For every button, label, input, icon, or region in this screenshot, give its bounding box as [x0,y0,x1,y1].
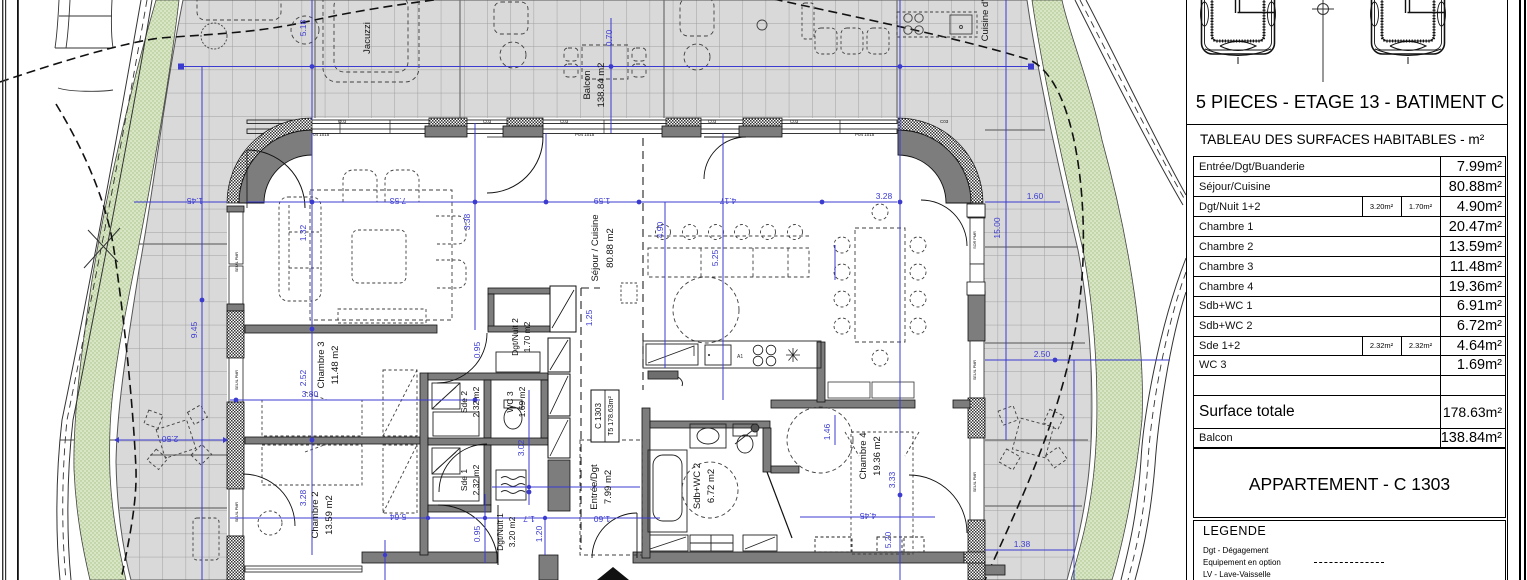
svg-text:C03: C03 [708,119,717,124]
svg-text:5.18: 5.18 [298,19,308,36]
svg-text:1.25: 1.25 [584,309,594,326]
svg-text:SEUIL PMR: SEUIL PMR [235,370,239,391]
svg-text:P04 1015: P04 1015 [310,132,330,137]
svg-text:2.32 m2: 2.32 m2 [471,386,481,417]
svg-text:1.32: 1.32 [298,224,308,241]
svg-text:80.88 m2: 80.88 m2 [605,228,616,268]
svg-text:1.45: 1.45 [186,196,203,206]
svg-text:SEUIL PMR: SEUIL PMR [235,502,239,523]
svg-text:Sdb+WC 2: Sdb+WC 2 [692,463,703,509]
svg-text:Séjour / Cuisine: Séjour / Cuisine [590,214,601,281]
svg-text:C03: C03 [338,119,347,124]
svg-text:3.28: 3.28 [876,191,893,201]
svg-text:1.60: 1.60 [1027,191,1044,201]
svg-text:Sde 2: Sde 2 [459,391,469,413]
svg-text:3.28: 3.28 [298,489,308,506]
svg-text:Sde 1: Sde 1 [459,469,469,491]
svg-text:2.50: 2.50 [1034,349,1051,359]
svg-text:Cuisine d'é: Cuisine d'é [980,0,991,41]
svg-text:Jacuzzi: Jacuzzi [362,22,373,54]
svg-text:13.59 m2: 13.59 m2 [324,495,335,535]
svg-text:Dgt/Nuit 2: Dgt/Nuit 2 [510,318,520,356]
svg-text:SEUIL PMR: SEUIL PMR [973,360,977,381]
svg-text:5.64: 5.64 [389,512,406,522]
svg-text:C03: C03 [940,119,949,124]
svg-text:P04 1015: P04 1015 [855,132,875,137]
svg-text:C03: C03 [790,119,799,124]
svg-text:0.95: 0.95 [472,341,482,358]
svg-text:1.59: 1.59 [593,196,610,206]
svg-text:2.50: 2.50 [161,434,178,444]
svg-text:4.17: 4.17 [719,196,736,206]
svg-text:7.53: 7.53 [389,196,406,206]
svg-text:19.36 m2: 19.36 m2 [872,436,883,476]
svg-text:C 1303: C 1303 [594,403,603,429]
svg-text:15.00: 15.00 [992,217,1002,239]
svg-text:2.32 m2: 2.32 m2 [471,464,481,495]
svg-text:4.90: 4.90 [655,221,665,238]
svg-text:1.60: 1.60 [593,514,610,524]
svg-text:5.20: 5.20 [883,531,893,548]
svg-text:C03: C03 [560,119,569,124]
svg-text:11.48 m2: 11.48 m2 [330,346,341,385]
svg-text:Balcon: Balcon [582,70,593,99]
svg-text:5.25: 5.25 [710,249,720,266]
svg-text:3.20 m2: 3.20 m2 [507,516,517,547]
svg-text:3.80: 3.80 [302,389,319,399]
svg-text:138.84 m2: 138.84 m2 [596,63,607,108]
svg-text:P04 1015: P04 1015 [575,132,595,137]
svg-text:Chambre 3: Chambre 3 [316,342,327,389]
svg-text:T5 178.63m²: T5 178.63m² [608,395,615,435]
svg-text:A1: A1 [737,354,743,360]
svg-text:0.95: 0.95 [472,525,482,542]
svg-text:Entrée/Dgt: Entrée/Dgt [589,464,600,510]
svg-text:WC 3: WC 3 [505,391,515,413]
svg-text:C03: C03 [483,119,492,124]
svg-text:1.38: 1.38 [1014,539,1031,549]
svg-text:3.33: 3.33 [887,471,897,488]
svg-text:Chambre 2: Chambre 2 [310,492,321,539]
svg-text:2.52: 2.52 [298,369,308,386]
svg-text:1.7: 1.7 [523,514,535,524]
svg-text:1.70 m2: 1.70 m2 [522,321,532,352]
svg-text:1.46: 1.46 [822,423,832,440]
svg-text:7.99 m2: 7.99 m2 [603,470,614,504]
svg-text:0.70: 0.70 [604,29,614,46]
svg-text:SEUIL PMR: SEUIL PMR [235,252,239,273]
svg-text:6.72 m2: 6.72 m2 [706,469,717,503]
svg-text:Chambre 4: Chambre 4 [858,433,869,480]
svg-text:1.69 m2: 1.69 m2 [517,386,527,417]
svg-text:4.45: 4.45 [859,511,876,521]
svg-text:1.20: 1.20 [534,525,544,542]
svg-text:9.45: 9.45 [189,321,199,338]
svg-text:3.38: 3.38 [462,213,472,230]
svg-text:SEUIL PMR: SEUIL PMR [973,472,977,493]
svg-text:SOR PMR: SOR PMR [973,231,977,249]
svg-text:Dgt/Nuit 1: Dgt/Nuit 1 [495,513,505,551]
svg-text:3.02: 3.02 [516,439,526,456]
